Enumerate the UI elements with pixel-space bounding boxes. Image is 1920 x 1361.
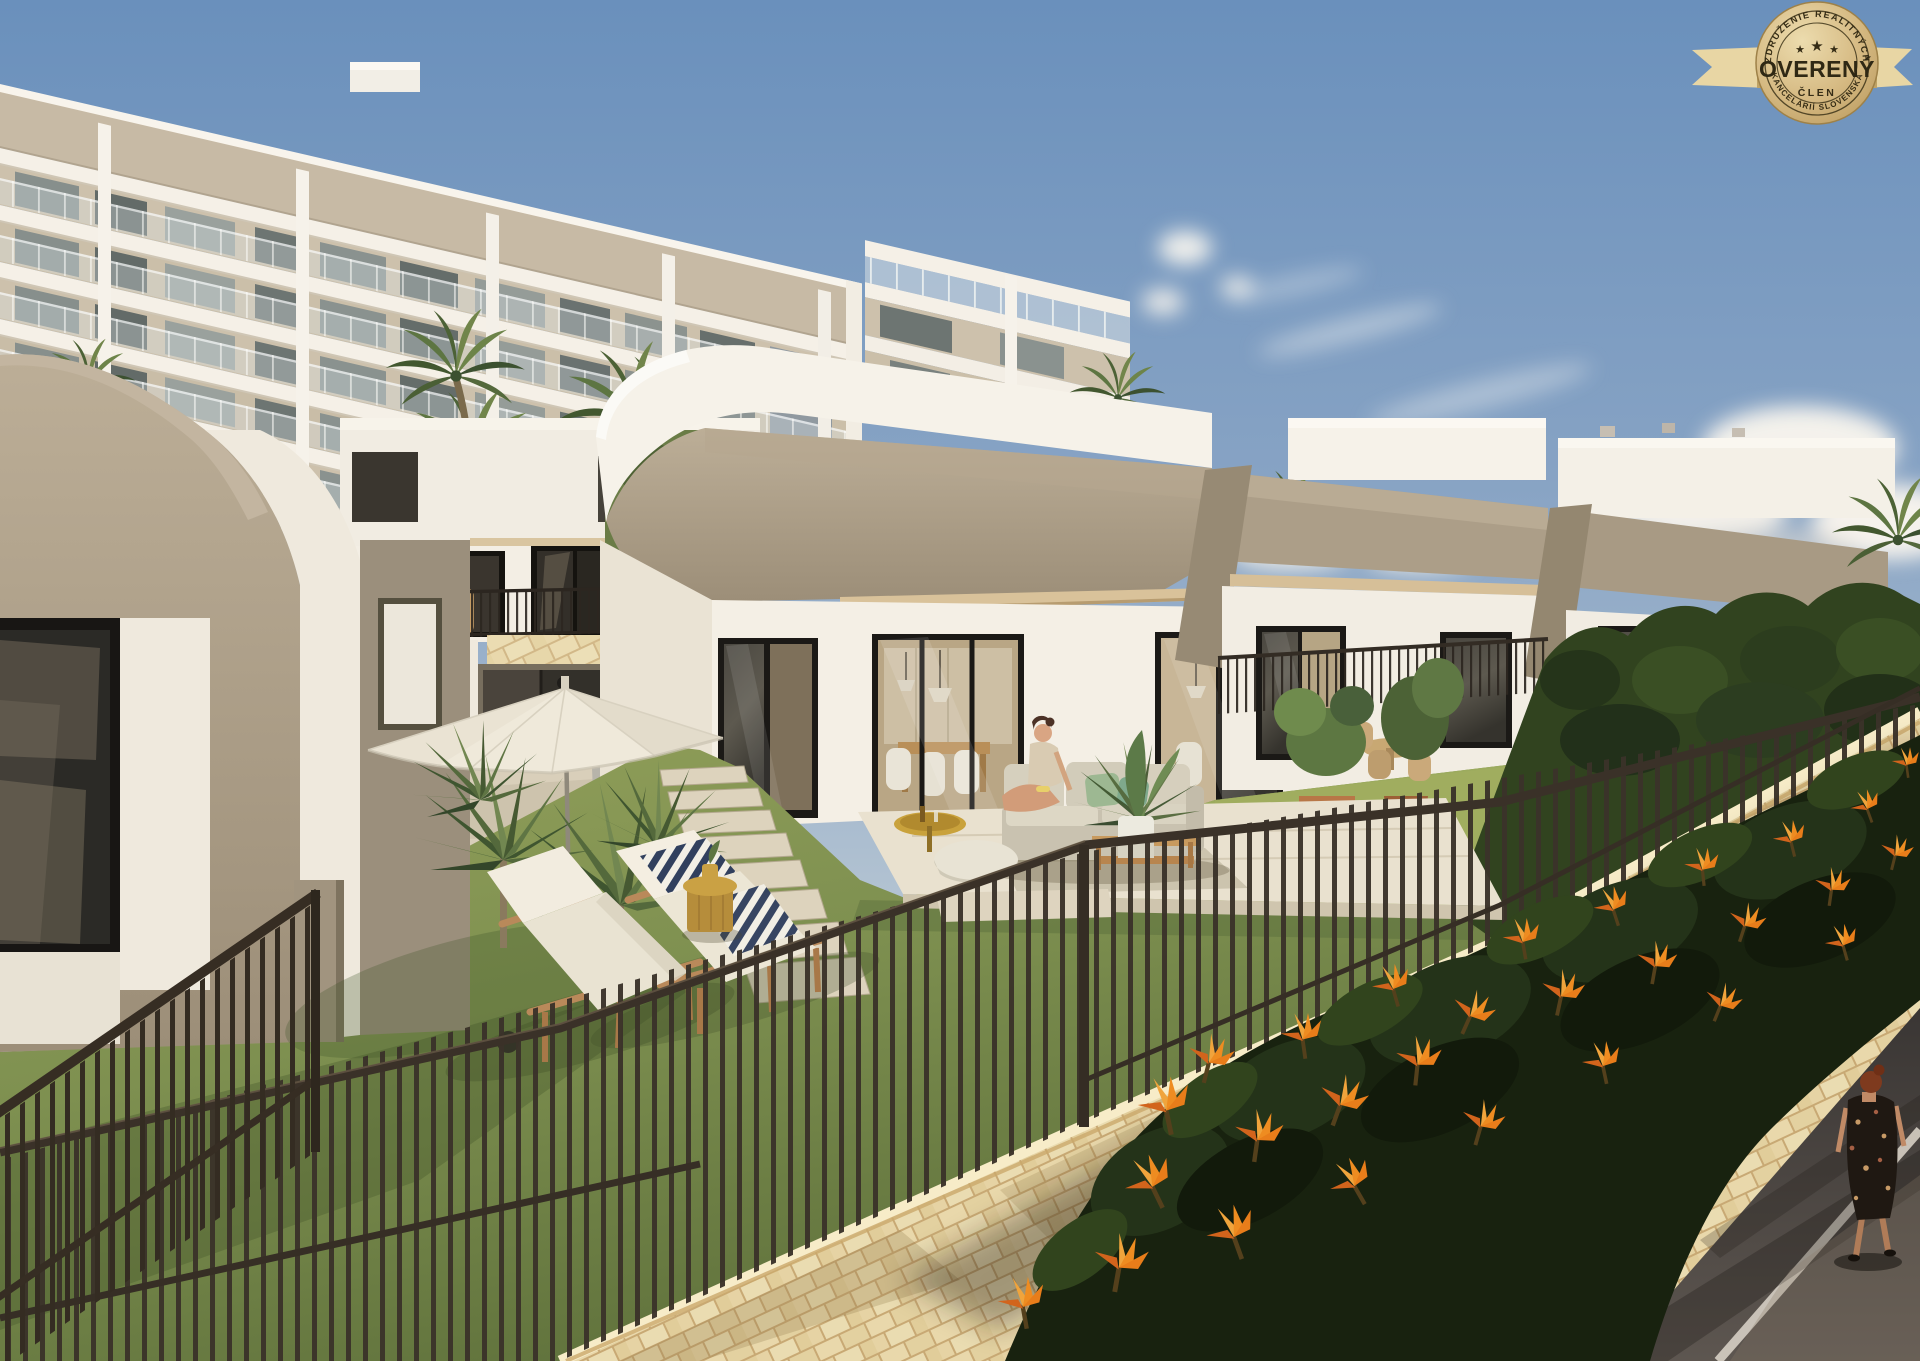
screenshot-root: ZDRUŽENIE REALITNÝCH KANCELÁRIÍ SLOVENSK… bbox=[0, 0, 1920, 1361]
architectural-render: ZDRUŽENIE REALITNÝCH KANCELÁRIÍ SLOVENSK… bbox=[0, 0, 1920, 1361]
badge-star-right-icon: ★ bbox=[1829, 44, 1839, 56]
badge-star-center-icon: ★ bbox=[1810, 38, 1823, 55]
badge-subtitle: ČLEN bbox=[1798, 86, 1837, 99]
badge-star-left-icon: ★ bbox=[1795, 44, 1805, 56]
left-villa-window bbox=[0, 618, 124, 956]
glass-door-main bbox=[872, 634, 1024, 818]
rooftop-box bbox=[350, 62, 420, 92]
badge-title: OVERENÝ bbox=[1759, 55, 1875, 82]
